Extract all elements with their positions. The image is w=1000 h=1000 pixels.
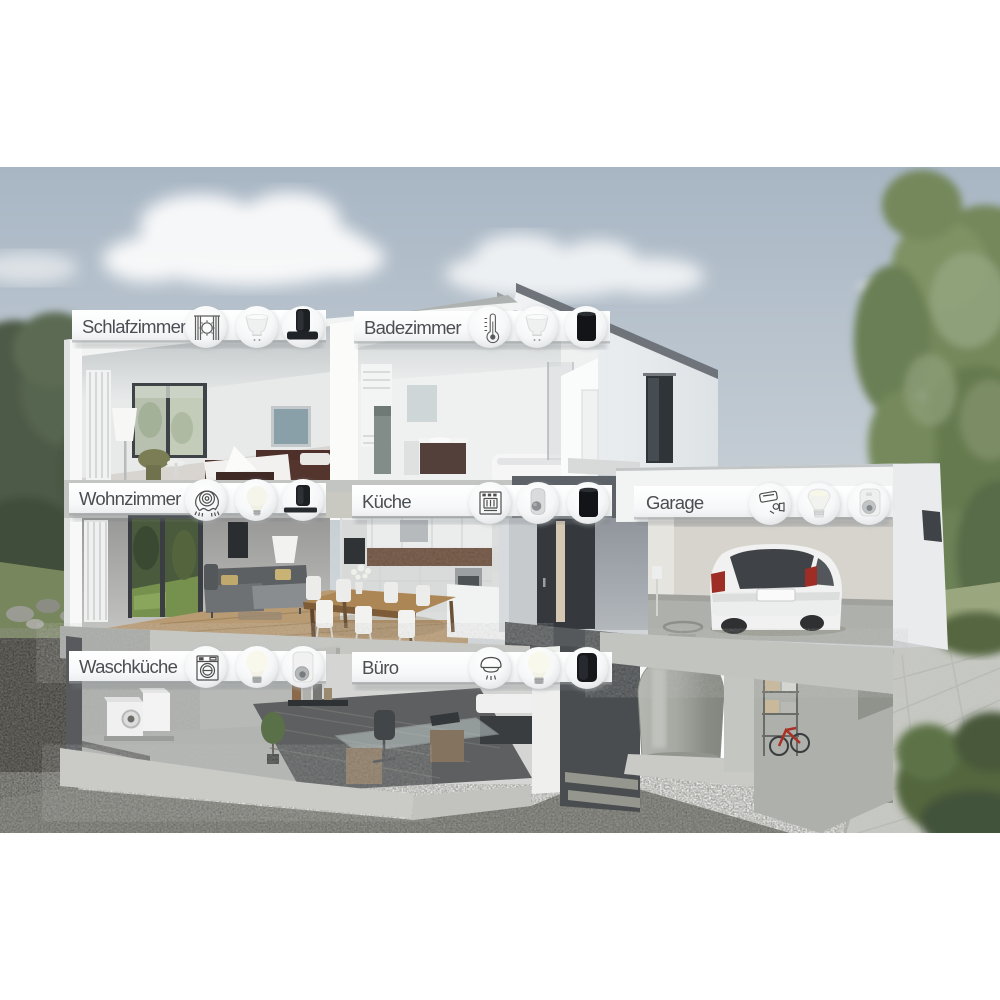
svg-text:Schlafzimmer: Schlafzimmer <box>82 316 186 337</box>
svg-text:Küche: Küche <box>362 491 411 512</box>
svg-text:Waschküche: Waschküche <box>79 656 178 677</box>
svg-text:Badezimmer: Badezimmer <box>364 317 461 338</box>
svg-text:Garage: Garage <box>646 492 704 513</box>
svg-text:Wohnzimmer: Wohnzimmer <box>79 488 181 509</box>
svg-text:Büro: Büro <box>362 657 399 678</box>
